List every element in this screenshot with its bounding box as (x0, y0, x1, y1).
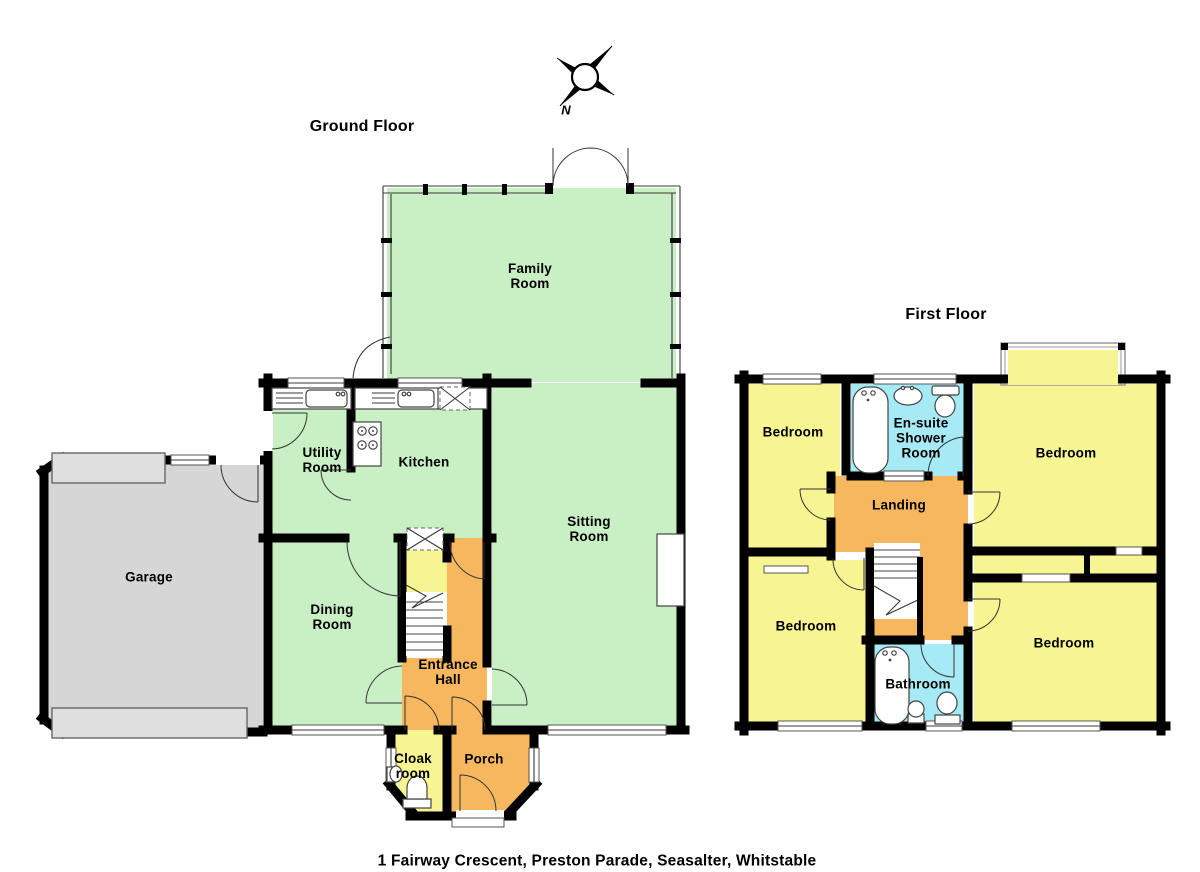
french-doors (553, 148, 628, 186)
curved-wall (353, 337, 390, 378)
wardrobe-door-left (1022, 574, 1070, 582)
wardrobe-door-right (1116, 547, 1142, 555)
ensuite-toilet (935, 395, 955, 417)
address-caption: 1 Fairway Crescent, Preston Parade, Seas… (378, 852, 817, 869)
bathroom-basin (908, 701, 924, 717)
utility-sink (306, 390, 347, 407)
fireplace (657, 534, 684, 606)
compass-icon (557, 46, 614, 106)
bedroom-bottom-right-area (974, 578, 1161, 726)
floorplan-drawing (0, 0, 1200, 872)
garage-door-top (52, 453, 165, 483)
bedroom-top-left-area (744, 384, 840, 552)
dining-room-area (272, 538, 402, 730)
room-label-dining-room: Dining Room (310, 602, 353, 632)
utility-door-opening (262, 411, 273, 451)
first-floor-title: First Floor (905, 306, 986, 324)
room-label-landing: Landing (872, 497, 926, 512)
bathroom-toilet (937, 692, 957, 714)
garage-door-bottom (52, 708, 247, 738)
room-label-bedroom-top-right: Bedroom (1036, 445, 1097, 460)
room-label-bathroom: Bathroom (885, 676, 950, 691)
bedroom-top-right-area (974, 384, 1161, 551)
room-label-cloak-room: Cloak room (394, 751, 432, 781)
bay-opening (1008, 373, 1118, 385)
french-door-jamb-left (545, 183, 553, 194)
ensuite-bath (853, 387, 888, 473)
ground-floor-plan (42, 148, 685, 827)
ensuite-basin (894, 387, 922, 405)
room-label-garage: Garage (125, 569, 173, 584)
room-label-sitting-room: Sitting Room (567, 514, 610, 544)
french-door-jamb-right (626, 183, 634, 194)
room-label-bedroom-bottom-right: Bedroom (1034, 635, 1095, 650)
room-label-bedroom-top-left: Bedroom (763, 424, 824, 439)
first-floor-plan (739, 343, 1166, 731)
room-label-kitchen: Kitchen (399, 454, 450, 469)
room-label-porch: Porch (464, 751, 503, 766)
toilet-cistern (403, 799, 431, 808)
ensuite-toilet-cistern (932, 386, 959, 395)
room-label-ensuite-shower-room: En-suite Shower Room (894, 415, 949, 460)
bathroom-toilet-cistern (935, 715, 960, 724)
room-label-bedroom-bottom-left: Bedroom (776, 618, 837, 633)
front-step (452, 818, 504, 827)
room-label-family-room: Family Room (508, 261, 552, 291)
garage-door-opening (216, 454, 260, 465)
ground-floor-title: Ground Floor (310, 118, 415, 136)
sitting-room-area (492, 383, 681, 730)
ground-floor-stairs (406, 528, 443, 656)
floorplan-page: Ground Floor First Floor Family Room Uti… (0, 0, 1200, 872)
stair-top-area (402, 548, 447, 592)
room-label-utility-room: Utility Room (302, 445, 341, 475)
room-label-entrance-hall: Entrance Hall (418, 657, 477, 687)
garage-area (48, 458, 263, 732)
wardrobe-door-strip (764, 566, 808, 573)
compass-north-label: N (561, 104, 571, 119)
